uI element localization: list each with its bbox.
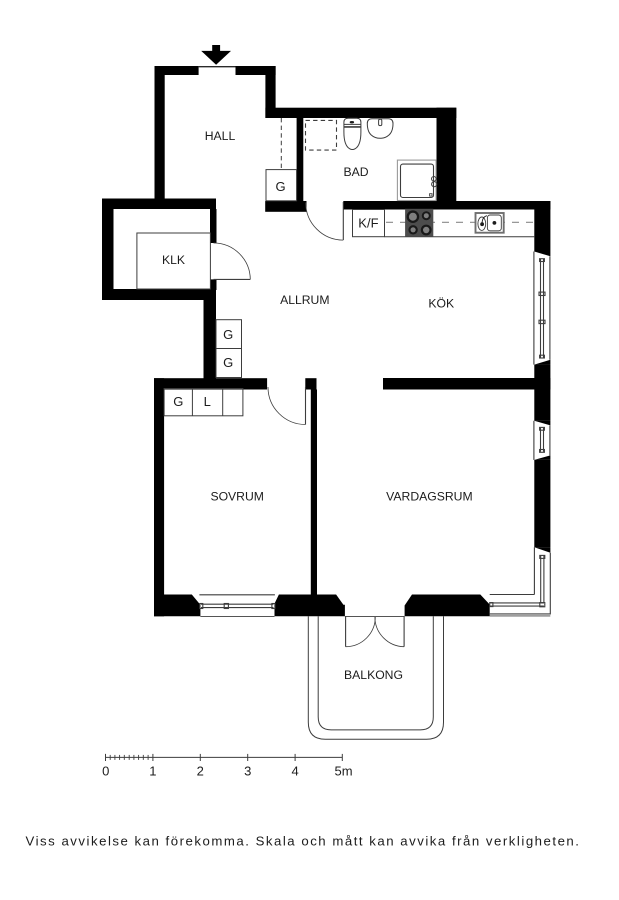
svg-text:G: G [223,327,233,342]
svg-text:4: 4 [291,764,298,779]
svg-text:3: 3 [244,764,251,779]
svg-text:5m: 5m [334,764,352,779]
svg-text:Viss avvikelse kan förekomma.: Viss avvikelse kan förekomma. Skala och … [26,834,581,849]
svg-text:VARDAGSRUM: VARDAGSRUM [386,490,472,504]
svg-text:KLK: KLK [162,253,185,267]
svg-text:KÖK: KÖK [428,297,454,311]
svg-text:G: G [276,179,286,194]
svg-text:SOVRUM: SOVRUM [210,489,264,503]
svg-text:0: 0 [102,764,109,779]
svg-text:1: 1 [149,764,156,779]
svg-text:HALL: HALL [205,129,236,143]
svg-text:G: G [173,394,183,409]
svg-text:K/F: K/F [358,215,378,230]
svg-text:L: L [204,394,211,409]
svg-text:ALLRUM: ALLRUM [280,293,329,307]
svg-text:BALKONG: BALKONG [344,668,403,682]
svg-text:BAD: BAD [343,165,368,179]
svg-text:2: 2 [197,764,204,779]
svg-text:G: G [223,355,233,370]
